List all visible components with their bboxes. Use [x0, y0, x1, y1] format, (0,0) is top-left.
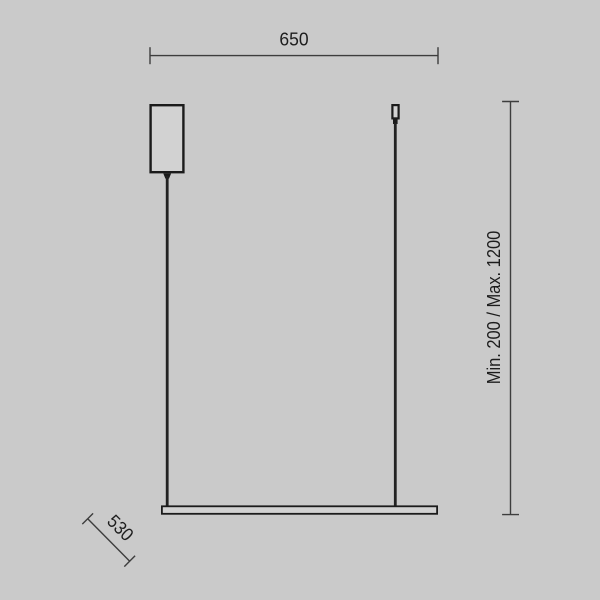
svg-text:650: 650 [279, 28, 308, 49]
svg-text:Min. 200 / Max. 1200: Min. 200 / Max. 1200 [483, 231, 504, 385]
